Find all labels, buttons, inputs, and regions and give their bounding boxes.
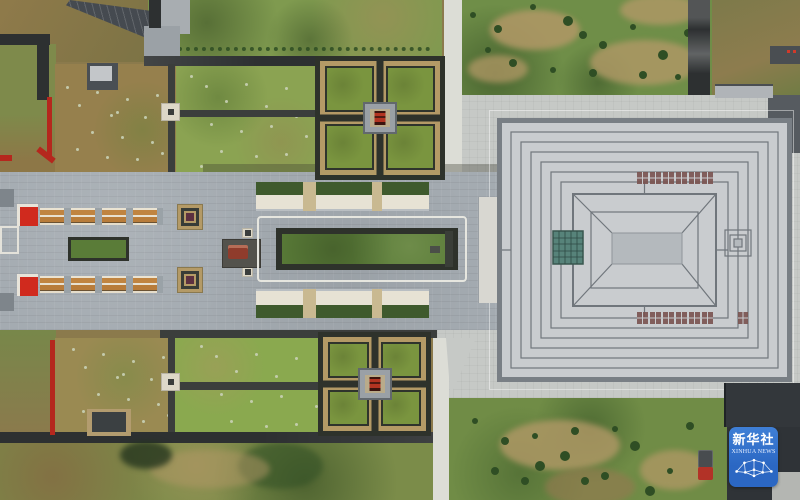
- saplings: [190, 75, 193, 78]
- tree-cluster: [120, 441, 172, 469]
- path-node-north: [161, 103, 180, 121]
- shed-roof: [90, 66, 112, 81]
- pavilion-pillar: [303, 289, 316, 318]
- colonnade-north: [40, 208, 163, 225]
- dirt-patch: [590, 40, 700, 85]
- cross-garden-south: [318, 332, 431, 436]
- xinhua-news-watermark: 新华社 XINHUA NEWS: [729, 427, 778, 487]
- pavilion: [316, 182, 372, 211]
- red-wall-north: [47, 97, 52, 159]
- pavilion-pillar: [372, 182, 382, 211]
- pavilion-row-south: [256, 289, 429, 318]
- museum-roof: [497, 118, 792, 382]
- aerial-scene: 新华社 XINHUA NEWS: [0, 0, 800, 500]
- white-path-bottom: [433, 338, 449, 500]
- cross-garden-north: [315, 56, 445, 180]
- west-entry-outline: [0, 226, 19, 254]
- trees: [472, 418, 478, 424]
- truck-cab: [698, 467, 713, 480]
- pavilion: [256, 289, 303, 318]
- red-gate-south: [17, 274, 38, 296]
- truck-trailer: [698, 450, 713, 468]
- road-junction: [144, 26, 180, 57]
- dark-building: [92, 412, 126, 432]
- red-wall-south: [50, 340, 55, 435]
- dirt-patch: [500, 420, 620, 470]
- garden-east-screen: [445, 231, 453, 267]
- watermark-english-text: XINHUA NEWS: [731, 449, 775, 455]
- dirt-patch: [490, 10, 580, 50]
- red-gate-north: [17, 204, 38, 226]
- west-gatehouse-south: [0, 293, 14, 311]
- path-horizontal-north: [178, 110, 318, 117]
- saplings: [66, 86, 69, 89]
- garden-platform: [358, 368, 392, 400]
- pavilion-pillar: [372, 289, 382, 318]
- pavilion: [382, 289, 429, 318]
- dirt-patch: [545, 468, 635, 500]
- path-horizontal-south: [178, 382, 320, 390]
- cross-pavilion-south: [177, 267, 203, 293]
- west-gatehouse-north: [0, 189, 14, 207]
- road-west-vertical: [37, 42, 49, 100]
- white-path-top: [444, 0, 462, 172]
- roofline-top-right: [715, 84, 773, 98]
- pavilion-pillar: [303, 182, 316, 211]
- path-node: [242, 228, 253, 238]
- path-vertical-south-a: [168, 338, 175, 374]
- dark-band-top-right: [770, 46, 800, 64]
- pavilion: [382, 182, 429, 211]
- path-node-south: [161, 373, 180, 391]
- cross-pavilion-north: [177, 204, 203, 230]
- dark-roof-upper: [724, 383, 800, 427]
- path-node: [242, 267, 253, 277]
- red-pavilion: [369, 377, 380, 391]
- path-vertical-south-b: [168, 391, 175, 433]
- tree-row: [178, 47, 430, 51]
- red-wall-stub: [0, 155, 12, 161]
- chariot-sculpture: [228, 245, 248, 259]
- entrance-ramp: [478, 197, 499, 303]
- road-north-stub: [149, 0, 161, 28]
- garden-platform: [363, 102, 397, 134]
- colonnade-south: [40, 276, 163, 293]
- dirt-patch: [468, 55, 528, 83]
- road-right-vertical: [688, 0, 710, 98]
- pavilion: [256, 182, 303, 211]
- pavilion: [316, 289, 372, 318]
- saplings: [72, 348, 75, 351]
- watermark-chinese-text: 新华社: [732, 433, 774, 446]
- saplings: [200, 345, 203, 348]
- red-pavilion: [375, 111, 386, 125]
- trees: [470, 12, 476, 18]
- central-garden-lawn: [282, 234, 452, 264]
- garden-marker: [430, 246, 440, 253]
- pavilion-row-north: [256, 182, 429, 211]
- field-orchard: [176, 64, 316, 176]
- sunken-garden-west: [68, 237, 129, 261]
- globe-network-icon: [734, 457, 774, 479]
- red-marker: [787, 50, 790, 53]
- red-marker: [793, 50, 796, 53]
- path-vertical-north-b: [168, 121, 175, 172]
